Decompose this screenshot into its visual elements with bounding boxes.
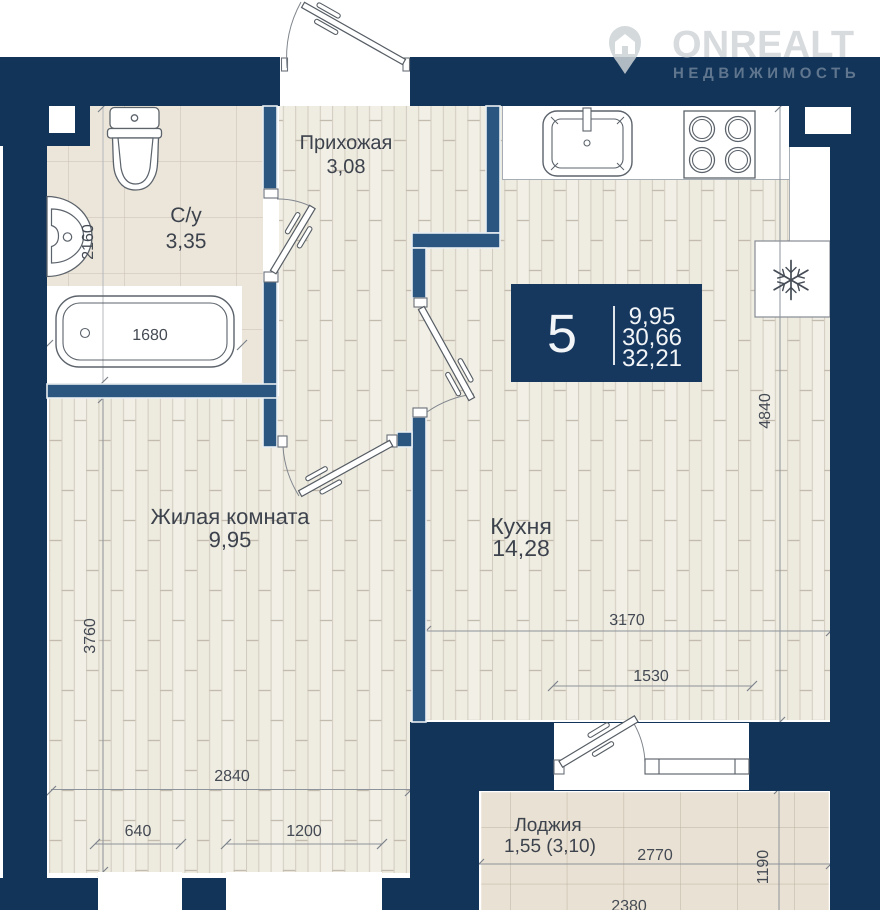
svg-text:2770: 2770 xyxy=(637,847,673,864)
svg-text:2380: 2380 xyxy=(611,898,647,910)
svg-text:9,95: 9,95 xyxy=(209,527,252,552)
svg-text:3760: 3760 xyxy=(82,618,99,654)
svg-text:14,28: 14,28 xyxy=(492,535,550,561)
svg-text:3,35: 3,35 xyxy=(166,230,207,253)
svg-text:Лоджия: Лоджия xyxy=(514,815,581,836)
svg-text:2840: 2840 xyxy=(214,768,250,785)
svg-text:5: 5 xyxy=(547,304,577,364)
svg-text:4840: 4840 xyxy=(757,393,774,429)
svg-text:32,21: 32,21 xyxy=(622,345,682,372)
svg-text:3170: 3170 xyxy=(609,612,645,629)
svg-text:3,08: 3,08 xyxy=(327,156,366,178)
svg-text:ONREALT: ONREALT xyxy=(672,24,854,66)
svg-text:1200: 1200 xyxy=(286,823,322,840)
svg-text:1530: 1530 xyxy=(633,668,669,685)
svg-text:Жилая комната: Жилая комната xyxy=(151,504,311,529)
svg-text:Прихожая: Прихожая xyxy=(300,132,393,154)
svg-text:1190: 1190 xyxy=(755,850,772,885)
svg-text:1,55 (3,10): 1,55 (3,10) xyxy=(504,836,596,857)
svg-text:2160: 2160 xyxy=(80,224,97,260)
svg-text:640: 640 xyxy=(125,823,152,840)
svg-text:1680: 1680 xyxy=(132,327,168,344)
svg-text:С/у: С/у xyxy=(170,204,202,227)
svg-text:НЕДВИЖИМОСТЬ: НЕДВИЖИМОСТЬ xyxy=(673,65,860,82)
